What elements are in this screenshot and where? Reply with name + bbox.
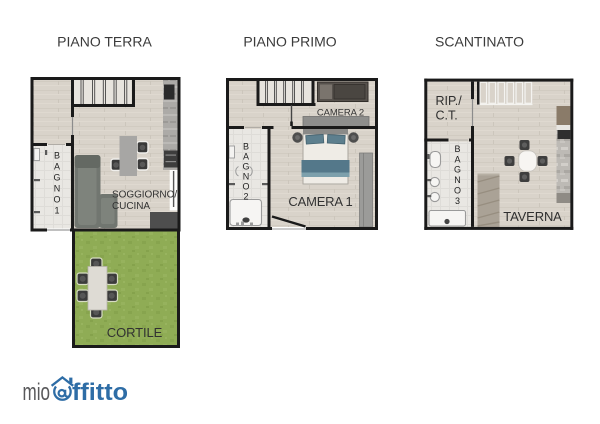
svg-text:1: 1: [54, 206, 59, 216]
svg-text:N: N: [454, 175, 461, 185]
svg-text:CAMERA 1: CAMERA 1: [288, 194, 352, 209]
svg-text:TAVERNA: TAVERNA: [503, 209, 562, 224]
svg-text:A: A: [454, 154, 460, 164]
svg-text:PIANO PRIMO: PIANO PRIMO: [243, 34, 336, 50]
svg-text:A: A: [54, 162, 60, 172]
svg-text:CAMERA 2: CAMERA 2: [317, 108, 364, 119]
svg-text:SCANTINATO: SCANTINATO: [435, 34, 524, 50]
svg-text:SOGGIORNO/: SOGGIORNO/: [112, 190, 177, 201]
svg-text:2: 2: [243, 192, 248, 202]
svg-text:PIANO TERRA: PIANO TERRA: [57, 34, 152, 50]
svg-text:ffitto: ffitto: [72, 379, 128, 406]
svg-text:3: 3: [455, 196, 460, 206]
svg-text:G: G: [53, 173, 60, 183]
svg-text:B: B: [54, 151, 60, 161]
svg-text:B: B: [454, 144, 460, 154]
svg-text:N: N: [54, 184, 61, 194]
svg-text:N: N: [243, 172, 250, 182]
svg-text:G: G: [454, 165, 461, 175]
svg-text:mio: mio: [23, 379, 51, 406]
svg-text:O: O: [454, 186, 461, 196]
svg-text:B: B: [243, 142, 249, 152]
svg-text:RIP./: RIP./: [436, 94, 463, 108]
svg-text:O: O: [242, 182, 249, 192]
svg-text:A: A: [243, 152, 249, 162]
svg-text:G: G: [242, 162, 249, 172]
svg-text:CORTILE: CORTILE: [107, 325, 163, 340]
svg-text:O: O: [53, 195, 60, 205]
svg-text:C.T.: C.T.: [436, 108, 458, 122]
svg-text:CUCINA: CUCINA: [112, 201, 150, 212]
